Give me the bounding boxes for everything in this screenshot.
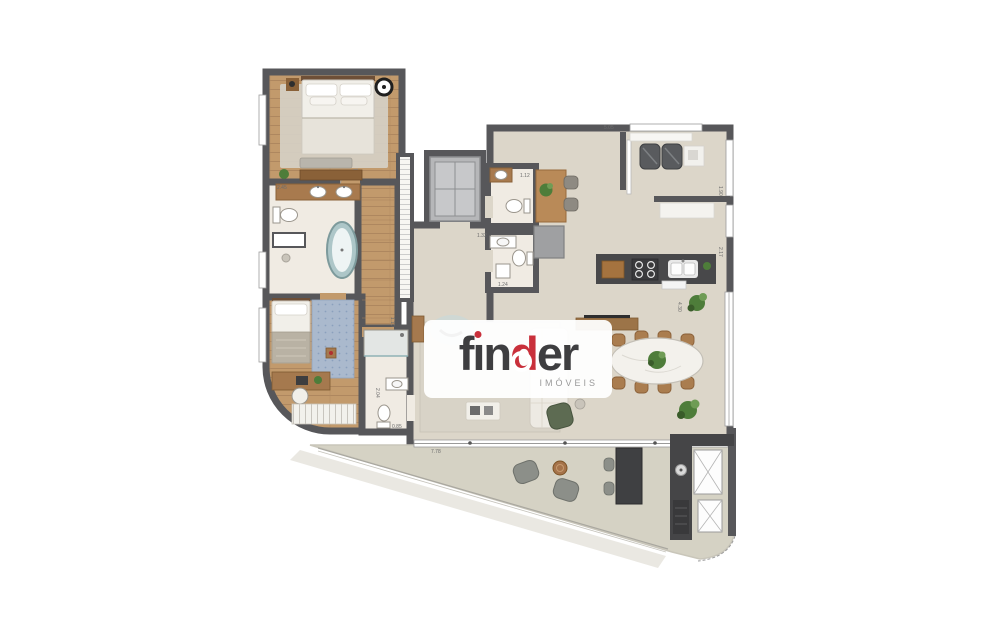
round-table-icon (553, 461, 567, 475)
logo-i-dot (474, 331, 481, 338)
kitchen-counter-icon (596, 254, 716, 289)
appliance-icon (673, 500, 689, 534)
elevator-icon (424, 150, 486, 229)
sink-icon (495, 171, 507, 180)
dimension-label: 2.17 (717, 247, 723, 257)
double-sink-icon (668, 260, 698, 279)
wardrobe-icon (292, 404, 356, 424)
master-bedroom (279, 76, 392, 180)
logo-subtitle: IMÓVEIS (539, 378, 598, 388)
blue-rug-icon (312, 300, 354, 378)
sink-icon (497, 238, 509, 246)
shower-box-icon (496, 264, 510, 278)
chair-icon (604, 482, 614, 495)
drain-icon (680, 469, 683, 472)
cutting-board-icon (602, 261, 624, 278)
kitchen-island-icon (534, 226, 564, 258)
logo-letter-d: d (510, 330, 537, 377)
stool-icon (282, 254, 290, 262)
dimension-label: 1.24 (498, 282, 508, 288)
toilet-icon (273, 207, 298, 223)
tray-icon (688, 150, 698, 160)
lounge-chair-icon (662, 144, 682, 169)
dimension-label: 2.04 (374, 388, 380, 398)
dimension-label: 1.32 (477, 233, 487, 239)
desk-chair-icon (292, 388, 308, 404)
toilet-icon (513, 250, 534, 266)
dresser-icon (300, 170, 362, 180)
logo-letter-i: ı (472, 330, 483, 377)
shelf-icon (630, 133, 692, 141)
den-wall (620, 132, 626, 190)
bed-bench-icon (300, 158, 352, 168)
side-table-icon (575, 399, 585, 409)
den-wall (654, 196, 730, 202)
single-bed-icon (272, 298, 310, 363)
sideboard-icon (660, 203, 714, 218)
lounge-chair-icon (640, 144, 660, 169)
double-bed-icon (301, 76, 375, 154)
niche-shelf-icon (273, 233, 305, 247)
dimension-label: 7.78 (431, 449, 441, 455)
decor-icon (329, 351, 333, 355)
toilet-icon (377, 405, 390, 428)
grill-icon (694, 450, 722, 494)
cooktop-icon (632, 259, 658, 280)
plant-icon (279, 169, 289, 179)
toilet-icon (506, 199, 530, 213)
logo-letter: n (483, 330, 510, 377)
round-lamp-center (382, 85, 386, 89)
plant-icon (703, 262, 711, 270)
bathtub-icon (327, 222, 357, 278)
dimension-label: 1.10 (389, 317, 395, 327)
desk-icon (272, 372, 330, 390)
dining-table-icon (611, 338, 703, 384)
dimension-label: 0.85 (392, 424, 402, 430)
dishwasher-icon (662, 281, 686, 289)
faucet-icon (317, 186, 319, 188)
logo-brand-text: fınder (459, 330, 578, 377)
console-icon (412, 316, 424, 342)
floor-plan-page: 2.455.051.121.321.241.902.174.301.102.04… (0, 0, 1000, 640)
dimension-label: 4.30 (676, 302, 682, 312)
logo-letter: er (537, 330, 577, 377)
logo-letter: f (459, 330, 473, 377)
faucet-icon (343, 186, 345, 188)
tv-icon (584, 315, 630, 318)
lamp-icon (289, 81, 295, 87)
chair-icon (604, 458, 614, 471)
hall-closet (398, 155, 412, 300)
dimension-label: 5.05 (604, 125, 614, 131)
finder-watermark-logo: fınder IMÓVEIS (424, 320, 612, 398)
coffee-table-icon (466, 402, 500, 420)
shower-icon (364, 330, 408, 356)
sink-icon (392, 381, 402, 388)
dimension-label: 2.45 (277, 185, 287, 191)
terrace-table-icon (616, 448, 642, 504)
sliding-panel-icon (627, 140, 631, 194)
dimension-label: 1.90 (717, 186, 723, 196)
dimension-label: 1.12 (520, 173, 530, 179)
grill-icon (698, 500, 722, 532)
